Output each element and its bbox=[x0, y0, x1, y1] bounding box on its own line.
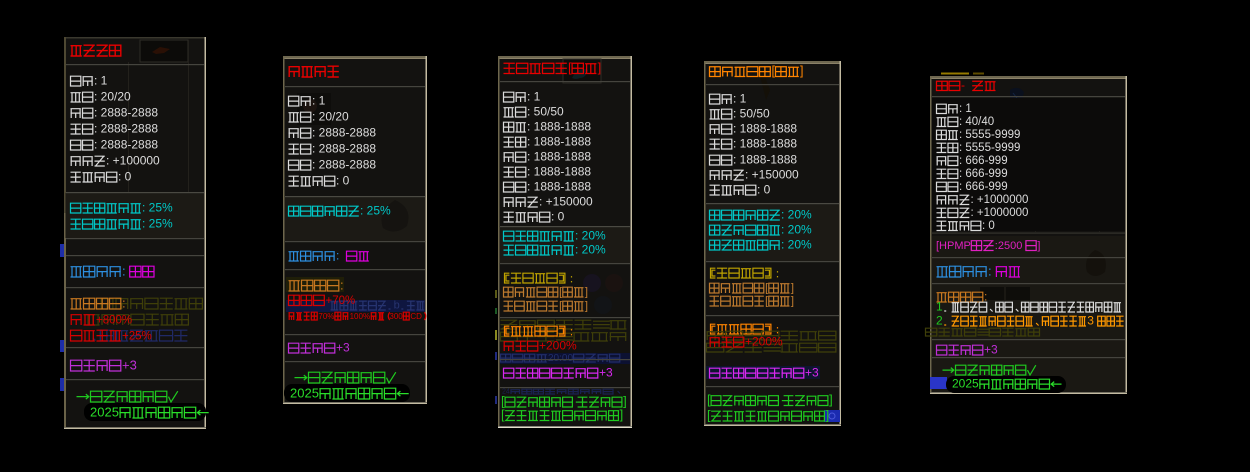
svg-text::: : bbox=[336, 249, 339, 263]
svg-text:: +150000: : +150000 bbox=[539, 195, 593, 209]
svg-text:: 1888-1888: : 1888-1888 bbox=[733, 122, 797, 136]
svg-text:: 20%: : 20% bbox=[781, 223, 812, 237]
svg-text:[: [ bbox=[707, 408, 711, 423]
svg-text:20:00: 20:00 bbox=[548, 353, 573, 364]
svg-text:+200%: +200% bbox=[539, 339, 577, 353]
svg-text:[: [ bbox=[568, 60, 572, 75]
svg-text:: 0: : 0 bbox=[118, 170, 132, 184]
svg-text:1: 1 bbox=[936, 300, 943, 314]
svg-text:: 20%: : 20% bbox=[781, 238, 812, 252]
svg-text:100%: 100% bbox=[350, 312, 370, 321]
svg-text:: 2888-2888: : 2888-2888 bbox=[94, 106, 158, 120]
svg-text:b: b bbox=[394, 300, 400, 312]
svg-text:2025: 2025 bbox=[952, 377, 979, 391]
svg-text:: 1888-1888: : 1888-1888 bbox=[733, 137, 797, 151]
svg-text:: 20/20: : 20/20 bbox=[94, 90, 131, 104]
svg-text:]: ] bbox=[826, 408, 830, 423]
svg-text:[HPMP: [HPMP bbox=[936, 240, 971, 252]
svg-text:: 1: : 1 bbox=[959, 103, 972, 115]
svg-text:]: ] bbox=[598, 60, 602, 75]
svg-text:]: ] bbox=[585, 299, 588, 313]
svg-text:+200%: +200% bbox=[745, 335, 783, 349]
svg-text:: 5555-9999: : 5555-9999 bbox=[959, 142, 1020, 154]
svg-text:: 50/50: : 50/50 bbox=[527, 105, 564, 119]
svg-text:: 20/20: : 20/20 bbox=[312, 110, 349, 124]
svg-text:: 2888-2888: : 2888-2888 bbox=[94, 122, 158, 136]
svg-text:+3: +3 bbox=[984, 343, 998, 357]
svg-text:+3: +3 bbox=[599, 366, 613, 380]
svg-text:: 0: : 0 bbox=[757, 183, 771, 197]
svg-text:: 1888-1888: : 1888-1888 bbox=[733, 153, 797, 167]
svg-text:: 25%: : 25% bbox=[360, 204, 391, 218]
svg-text:300: 300 bbox=[389, 312, 403, 321]
svg-text:70%: 70% bbox=[318, 312, 334, 321]
svg-text:: 1888-1888: : 1888-1888 bbox=[527, 165, 591, 179]
svg-text:+3: +3 bbox=[122, 357, 137, 372]
svg-text:2025: 2025 bbox=[290, 385, 319, 400]
svg-text:: 0: : 0 bbox=[551, 210, 565, 224]
svg-text:: 20%: : 20% bbox=[781, 208, 812, 222]
svg-text:: 2888-2888: : 2888-2888 bbox=[312, 142, 376, 156]
svg-text:: 666-999: : 666-999 bbox=[959, 181, 1008, 193]
svg-text:: 5555-9999: : 5555-9999 bbox=[959, 129, 1020, 141]
svg-text:: +150000: : +150000 bbox=[745, 168, 799, 182]
svg-text::: : bbox=[988, 263, 992, 278]
svg-text:]: ] bbox=[620, 407, 624, 422]
svg-text:]: ] bbox=[791, 294, 794, 308]
svg-text:: 40/40: : 40/40 bbox=[959, 116, 994, 128]
svg-text:: 1: : 1 bbox=[312, 94, 326, 108]
svg-text::: : bbox=[340, 277, 344, 292]
svg-text::2500: :2500 bbox=[995, 240, 1023, 252]
svg-text:: 25%: : 25% bbox=[142, 217, 173, 231]
svg-text:[: [ bbox=[707, 392, 711, 407]
svg-text:: 1888-1888: : 1888-1888 bbox=[527, 135, 591, 149]
svg-text:: 0: : 0 bbox=[336, 174, 350, 188]
svg-text:3: 3 bbox=[1087, 314, 1094, 328]
svg-text:2: 2 bbox=[936, 314, 943, 328]
svg-text:]: ] bbox=[829, 392, 833, 407]
svg-text:: 666-999: : 666-999 bbox=[959, 168, 1008, 180]
svg-text:: 20%: : 20% bbox=[575, 229, 606, 243]
svg-text:: +1000000: : +1000000 bbox=[971, 207, 1029, 219]
svg-text::: : bbox=[122, 295, 126, 310]
svg-text:[: [ bbox=[501, 407, 505, 422]
svg-text:: 666-999: : 666-999 bbox=[959, 155, 1008, 167]
svg-text:: 1888-1888: : 1888-1888 bbox=[527, 120, 591, 134]
svg-text:]: ] bbox=[1037, 240, 1040, 252]
svg-text::: : bbox=[122, 263, 126, 278]
svg-text:-: - bbox=[961, 78, 965, 92]
svg-text:: 0: : 0 bbox=[982, 220, 995, 232]
svg-text:CD: CD bbox=[410, 312, 422, 321]
svg-text:+3: +3 bbox=[336, 341, 350, 355]
svg-text:: 2888-2888: : 2888-2888 bbox=[312, 126, 376, 140]
svg-text:]: ] bbox=[791, 281, 794, 295]
svg-text:: 2888-2888: : 2888-2888 bbox=[312, 158, 376, 172]
svg-text:: 50/50: : 50/50 bbox=[733, 107, 770, 121]
svg-text:: +100000: : +100000 bbox=[106, 154, 160, 168]
svg-text:: 1: : 1 bbox=[733, 92, 747, 106]
svg-text:: +1000000: : +1000000 bbox=[971, 194, 1029, 206]
svg-text:: 20%: : 20% bbox=[575, 243, 606, 257]
svg-text:: 1888-1888: : 1888-1888 bbox=[527, 150, 591, 164]
svg-text::: : bbox=[984, 290, 987, 304]
svg-text:: 1888-1888: : 1888-1888 bbox=[527, 180, 591, 194]
svg-text:: 1: : 1 bbox=[527, 90, 541, 104]
svg-text:: 2888-2888: : 2888-2888 bbox=[94, 138, 158, 152]
svg-text:: 1: : 1 bbox=[94, 74, 108, 88]
svg-text:+70%: +70% bbox=[326, 295, 356, 307]
svg-text:]: ] bbox=[623, 394, 627, 409]
svg-text:: 25%: : 25% bbox=[142, 201, 173, 215]
svg-text:+3: +3 bbox=[805, 366, 819, 380]
svg-text:]: ] bbox=[585, 285, 588, 299]
svg-text:+25%: +25% bbox=[122, 330, 152, 342]
svg-text:2025: 2025 bbox=[90, 404, 119, 419]
svg-text:+800%: +800% bbox=[96, 314, 132, 326]
svg-text:]: ] bbox=[800, 64, 803, 78]
